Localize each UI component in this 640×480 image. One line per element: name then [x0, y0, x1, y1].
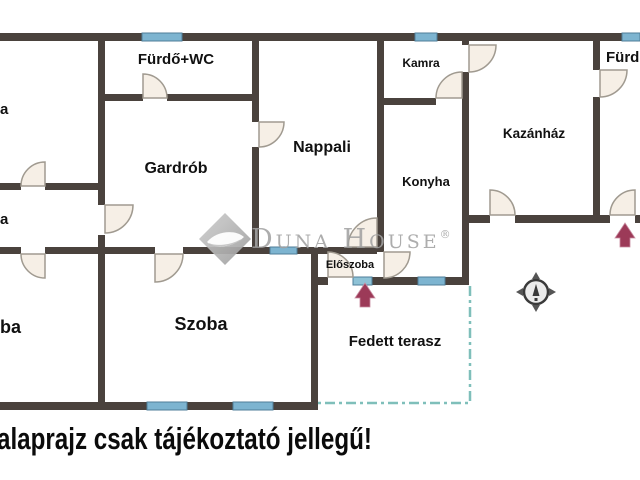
door-arc-icon — [384, 252, 410, 278]
door-arc-icon — [21, 162, 45, 186]
wall-kazanhaz-furdo — [593, 97, 600, 223]
wall-top — [0, 33, 640, 41]
door-arc-icon — [105, 205, 133, 233]
wall-bathroom-gardrobe — [167, 94, 259, 101]
wall-gardrobe-nappali — [252, 147, 259, 254]
entrance-arrow-icon — [615, 223, 635, 247]
room-label-furdo-wc: Fürdő+WC — [106, 52, 246, 69]
room-label-nappali: Nappali — [262, 139, 382, 157]
window-icon — [415, 33, 437, 41]
wall-gardrobe-nappali — [252, 41, 259, 122]
door-arc-icon — [490, 190, 515, 215]
entrance-door-arc-icon — [610, 190, 635, 215]
disclaimer-text: alaprajz csak tájékoztató jellegű! — [0, 421, 372, 457]
window-icon — [233, 402, 273, 410]
window-icon — [270, 247, 297, 254]
window-icon — [147, 402, 187, 410]
door-arc-icon — [469, 45, 496, 72]
room-label-fedett-terasz: Fedett terasz — [325, 334, 465, 351]
room-label-szoba: Szoba — [141, 315, 261, 335]
room-label-cutoff-1: a — [0, 102, 8, 119]
wall-szoba-terasz — [311, 247, 318, 410]
room-label-cutoff-2: a — [0, 212, 8, 229]
room-label-konyha: Konyha — [386, 175, 466, 189]
door-arc-icon — [143, 74, 167, 98]
wall-center-horizontal — [0, 247, 21, 254]
window-icon — [418, 277, 445, 285]
wall-south-east — [635, 215, 640, 223]
wall-kazanhaz-furdo — [593, 41, 600, 70]
door-arc-icon — [21, 254, 45, 278]
wall-kamra-konyha — [384, 98, 436, 105]
room-label-gardrob: Gardrób — [106, 160, 246, 178]
room-label-eloszoba: Előszoba — [318, 259, 382, 271]
wall-left-column — [98, 235, 105, 402]
window-icon — [142, 33, 182, 41]
room-label-kamra: Kamra — [384, 57, 458, 70]
walls — [0, 33, 640, 410]
wall-nappali-konyha — [377, 278, 384, 285]
window-icon — [622, 33, 640, 41]
room-label-cutoff-3: ba — [0, 318, 21, 338]
door-arc-icon — [348, 218, 377, 247]
entrance-arrow-icon — [355, 283, 375, 307]
room-label-kazanhaz: Kazánház — [474, 127, 594, 142]
door-arc-icon — [600, 70, 627, 97]
wall-konyha-kazanhaz — [462, 41, 469, 45]
door-arc-icon — [155, 254, 183, 282]
compass-rose-icon — [516, 272, 556, 312]
room-label-furdo: Fürdő — [606, 50, 640, 67]
door-arc-icon — [436, 72, 462, 98]
floor-plan-drawing — [0, 0, 640, 480]
wall-left-column — [98, 41, 105, 205]
wall-left-rooms — [45, 183, 98, 190]
wall-left-rooms — [0, 183, 21, 190]
entrance-door-glass-icon — [353, 277, 372, 285]
floor-plan-page: Duna House® Fürdő+WC Kamra Fürdő Gardrób… — [0, 0, 640, 480]
